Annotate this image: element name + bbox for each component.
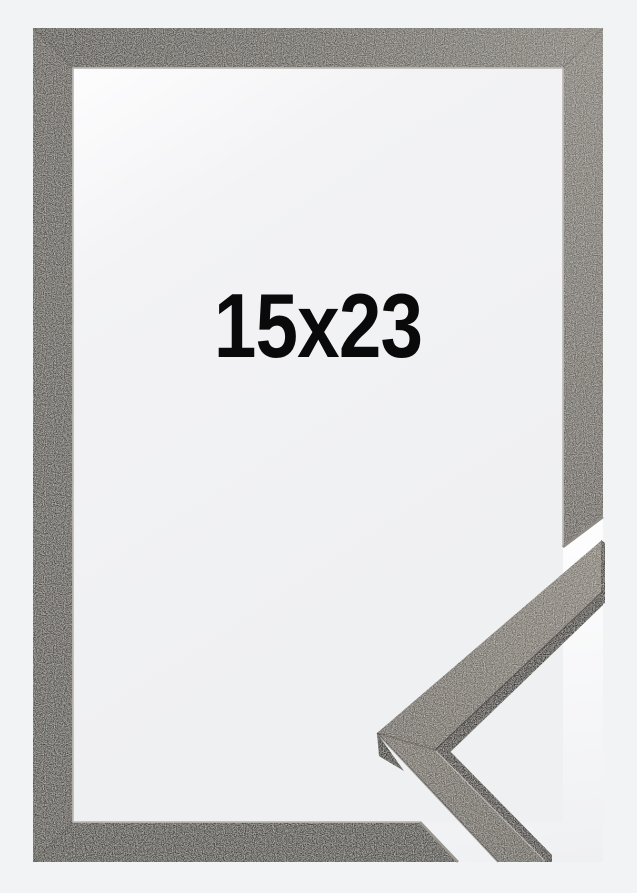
frame-left-bar — [33, 28, 73, 862]
frame-top-bar — [33, 28, 603, 68]
profile-upper-arm-end-face — [601, 540, 605, 605]
picture-frame-graphic — [0, 0, 637, 893]
frame-bottom-bar — [33, 822, 458, 862]
product-image: 15x23 — [0, 0, 637, 893]
frame-right-bar — [563, 28, 603, 547]
size-label: 15x23 — [112, 281, 524, 372]
